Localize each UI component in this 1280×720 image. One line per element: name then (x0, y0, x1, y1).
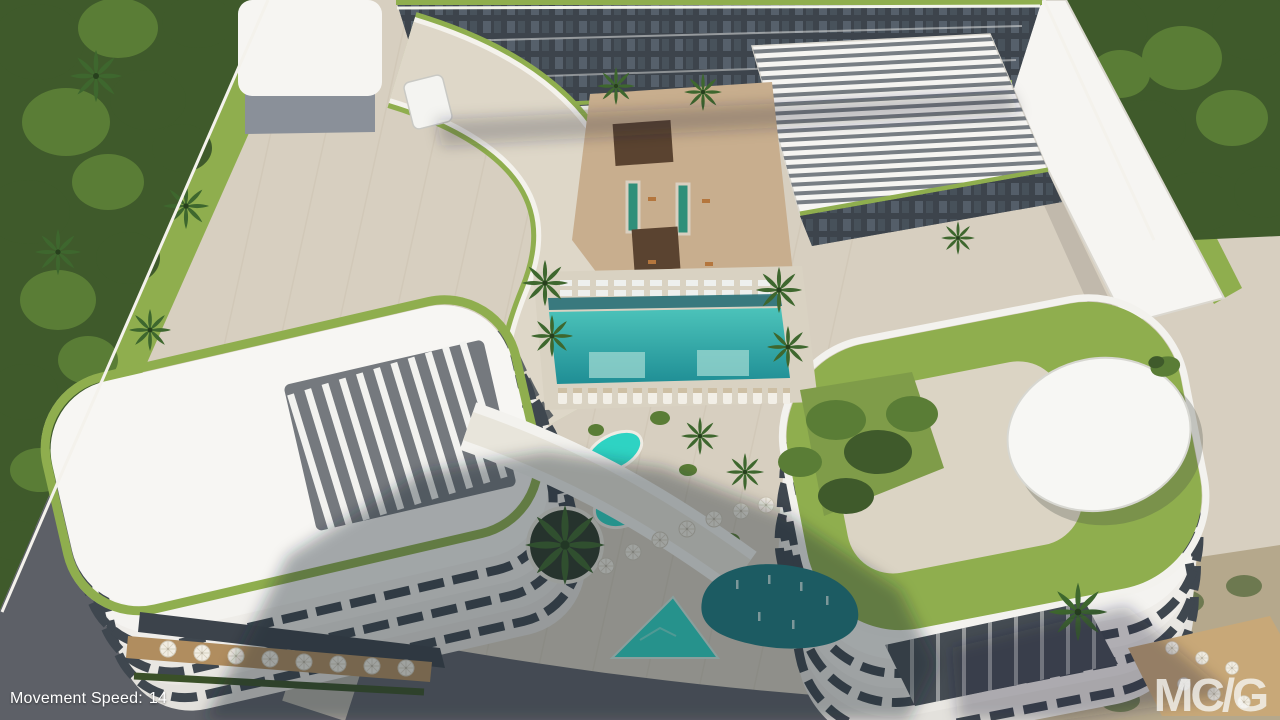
movement-speed-value: 14 (149, 690, 167, 708)
archviz-app-window: Movement Speed:14 MC/G (0, 0, 1280, 720)
cabana-row (556, 280, 774, 296)
3d-viewport[interactable] (0, 0, 1280, 720)
movement-speed-label: Movement Speed: (10, 690, 143, 708)
main-swimming-pool (549, 308, 790, 384)
movement-speed-hud: Movement Speed:14 (10, 690, 167, 708)
sun-lounger-row (552, 388, 790, 412)
mcg-logo: MC/G (1154, 672, 1266, 718)
